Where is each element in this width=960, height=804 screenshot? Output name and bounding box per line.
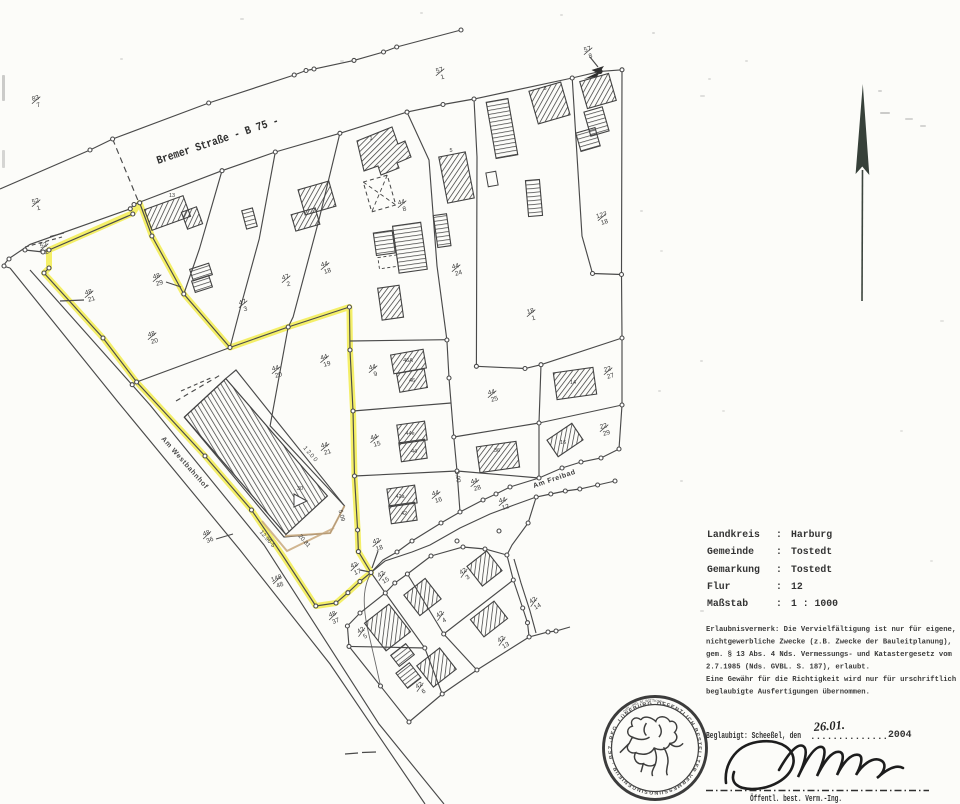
svg-text:6: 6 xyxy=(421,688,428,696)
svg-text:21: 21 xyxy=(323,448,332,457)
svg-text:46: 46 xyxy=(409,378,415,384)
svg-text:24: 24 xyxy=(454,269,463,278)
svg-text:Bremer Straße - B 75 -: Bremer Straße - B 75 - xyxy=(155,115,281,168)
svg-text:3: 3 xyxy=(465,574,472,582)
svg-text:5: 5 xyxy=(449,148,452,154)
svg-text:3: 3 xyxy=(543,86,546,92)
svg-text:Landkreis: Landkreis xyxy=(707,529,760,540)
svg-text:5: 5 xyxy=(362,633,369,641)
svg-text:16: 16 xyxy=(434,496,443,505)
svg-text:13: 13 xyxy=(169,193,175,199)
svg-text:2: 2 xyxy=(286,281,292,289)
svg-text:25: 25 xyxy=(490,395,499,404)
svg-text:4: 4 xyxy=(441,617,448,625)
svg-text:21: 21 xyxy=(87,295,96,304)
svg-text:2004: 2004 xyxy=(888,729,912,740)
svg-text:20: 20 xyxy=(274,371,283,380)
svg-text:14: 14 xyxy=(570,380,576,386)
svg-text:8: 8 xyxy=(402,206,408,214)
svg-text:1 : 1000: 1 : 1000 xyxy=(791,598,838,609)
svg-text::: : xyxy=(776,581,782,592)
svg-text:30: 30 xyxy=(297,486,303,492)
svg-text:Eine Gewähr für die Richtigkei: Eine Gewähr für die Richtigkeit wird nur… xyxy=(706,676,956,684)
svg-text:29: 29 xyxy=(602,429,611,438)
svg-text:26.01.: 26.01. xyxy=(812,718,845,734)
svg-text:18: 18 xyxy=(375,544,384,553)
svg-text:Tostedt: Tostedt xyxy=(791,546,832,557)
svg-text:48: 48 xyxy=(275,581,285,590)
svg-text:18: 18 xyxy=(323,267,332,276)
svg-text:Flur: Flur xyxy=(707,581,731,592)
svg-text:37: 37 xyxy=(331,617,341,626)
svg-text:36: 36 xyxy=(205,536,215,545)
svg-text:beglaubigte Ausfertigungen übe: beglaubigte Ausfertigungen übernommen. xyxy=(706,689,870,697)
svg-text::: : xyxy=(776,529,782,540)
svg-text:18: 18 xyxy=(600,218,609,227)
svg-text:8: 8 xyxy=(588,53,594,61)
svg-text:20: 20 xyxy=(150,337,159,346)
svg-text::: : xyxy=(776,598,782,609)
svg-text:nichtgewerbliche Zwecke (z.B.: nichtgewerbliche Zwecke (z.B. Zwecke der… xyxy=(706,639,952,647)
svg-text:Beglaubigt: Scheeßel, den: Beglaubigt: Scheeßel, den xyxy=(706,730,801,741)
svg-text:1: 1 xyxy=(531,315,537,323)
svg-text:15: 15 xyxy=(373,440,382,449)
svg-text:42a: 42a xyxy=(395,494,405,500)
svg-text:Öffentl. best. Verm.-Ing.: Öffentl. best. Verm.-Ing. xyxy=(750,793,842,804)
svg-text:16: 16 xyxy=(560,440,566,446)
svg-text:Harburg: Harburg xyxy=(791,529,832,540)
svg-text:20.81: 20.81 xyxy=(297,534,312,550)
svg-text:7: 7 xyxy=(36,102,42,110)
svg-text:Tostedt: Tostedt xyxy=(791,564,832,575)
svg-text:Gemarkung: Gemarkung xyxy=(707,564,760,575)
svg-text:19: 19 xyxy=(323,360,332,369)
svg-text:Gemeinde: Gemeinde xyxy=(707,546,754,557)
svg-text:12: 12 xyxy=(791,581,803,592)
svg-text:1: 1 xyxy=(369,136,372,142)
svg-text:3.00: 3.00 xyxy=(453,471,461,484)
svg-text:44: 44 xyxy=(411,449,417,455)
svg-text:Maßstab: Maßstab xyxy=(707,598,748,609)
svg-text:Erlaubnisvermerk: Die Vervielf: Erlaubnisvermerk: Die Vervielfältigung i… xyxy=(706,626,956,634)
svg-text:36: 36 xyxy=(494,448,500,454)
svg-text::: : xyxy=(776,564,782,575)
svg-text:1: 1 xyxy=(36,205,42,213)
svg-text:46A: 46A xyxy=(403,358,413,364)
svg-text:2.7.1985 (Nds. GVBL. S. 187),: 2.7.1985 (Nds. GVBL. S. 187), erlaubt. xyxy=(706,664,870,672)
svg-text:27: 27 xyxy=(606,372,615,381)
svg-text:44e: 44e xyxy=(405,431,414,437)
svg-text:5.09: 5.09 xyxy=(337,509,346,522)
svg-text:42: 42 xyxy=(401,511,407,517)
svg-text::: : xyxy=(776,546,782,557)
svg-text:17: 17 xyxy=(353,568,363,577)
svg-text:gem. § 13 Abs. 4 Nds. Vermessu: gem. § 13 Abs. 4 Nds. Vermessungs- und K… xyxy=(706,651,953,659)
svg-text:9: 9 xyxy=(373,371,379,379)
svg-text:1: 1 xyxy=(440,74,446,82)
svg-text:29: 29 xyxy=(155,279,164,288)
svg-text:12: 12 xyxy=(501,503,510,512)
svg-text:28: 28 xyxy=(473,484,482,493)
svg-text:3: 3 xyxy=(243,306,249,314)
